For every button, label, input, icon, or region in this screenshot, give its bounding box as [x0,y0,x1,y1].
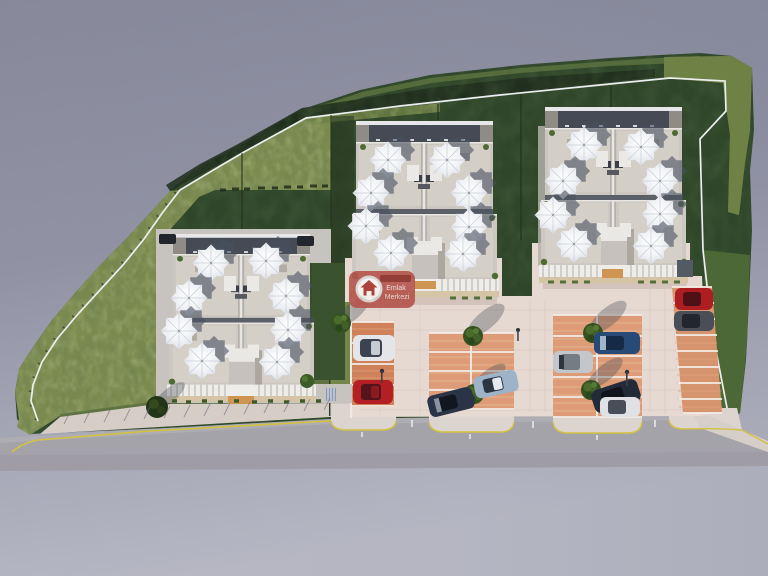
svg-text:Emlak: Emlak [386,285,406,292]
svg-text:Merkezi: Merkezi [385,294,410,301]
